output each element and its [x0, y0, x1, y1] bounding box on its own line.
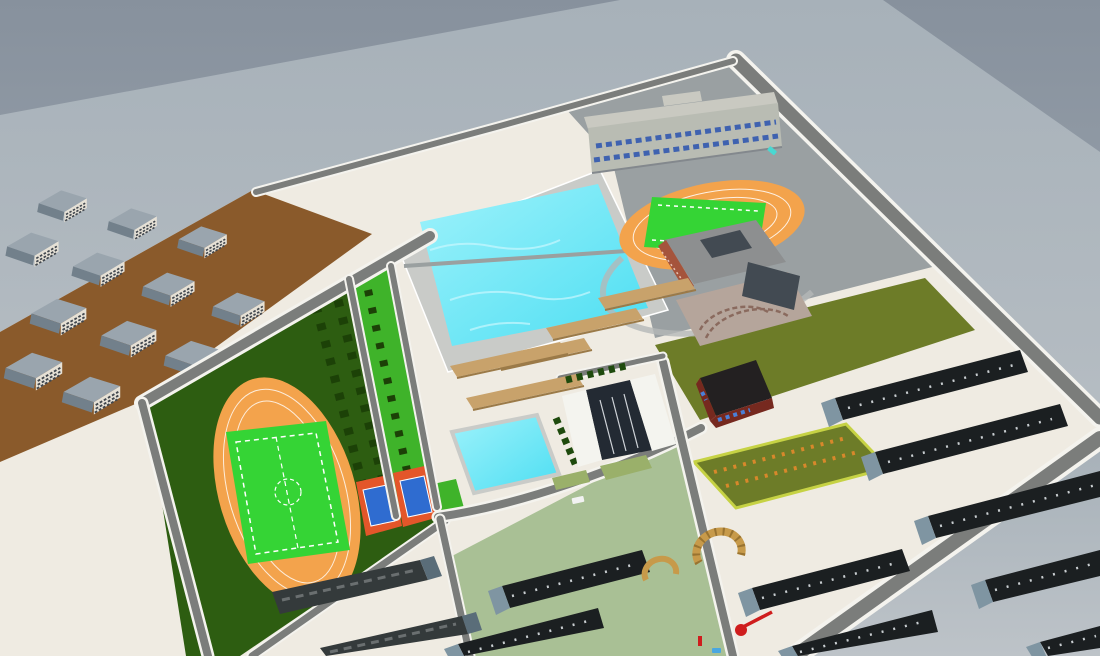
blue-car [712, 648, 721, 653]
model-viewport[interactable] [0, 0, 1100, 656]
campus-3d-render[interactable] [0, 0, 1100, 656]
sculpture-post [698, 636, 702, 646]
